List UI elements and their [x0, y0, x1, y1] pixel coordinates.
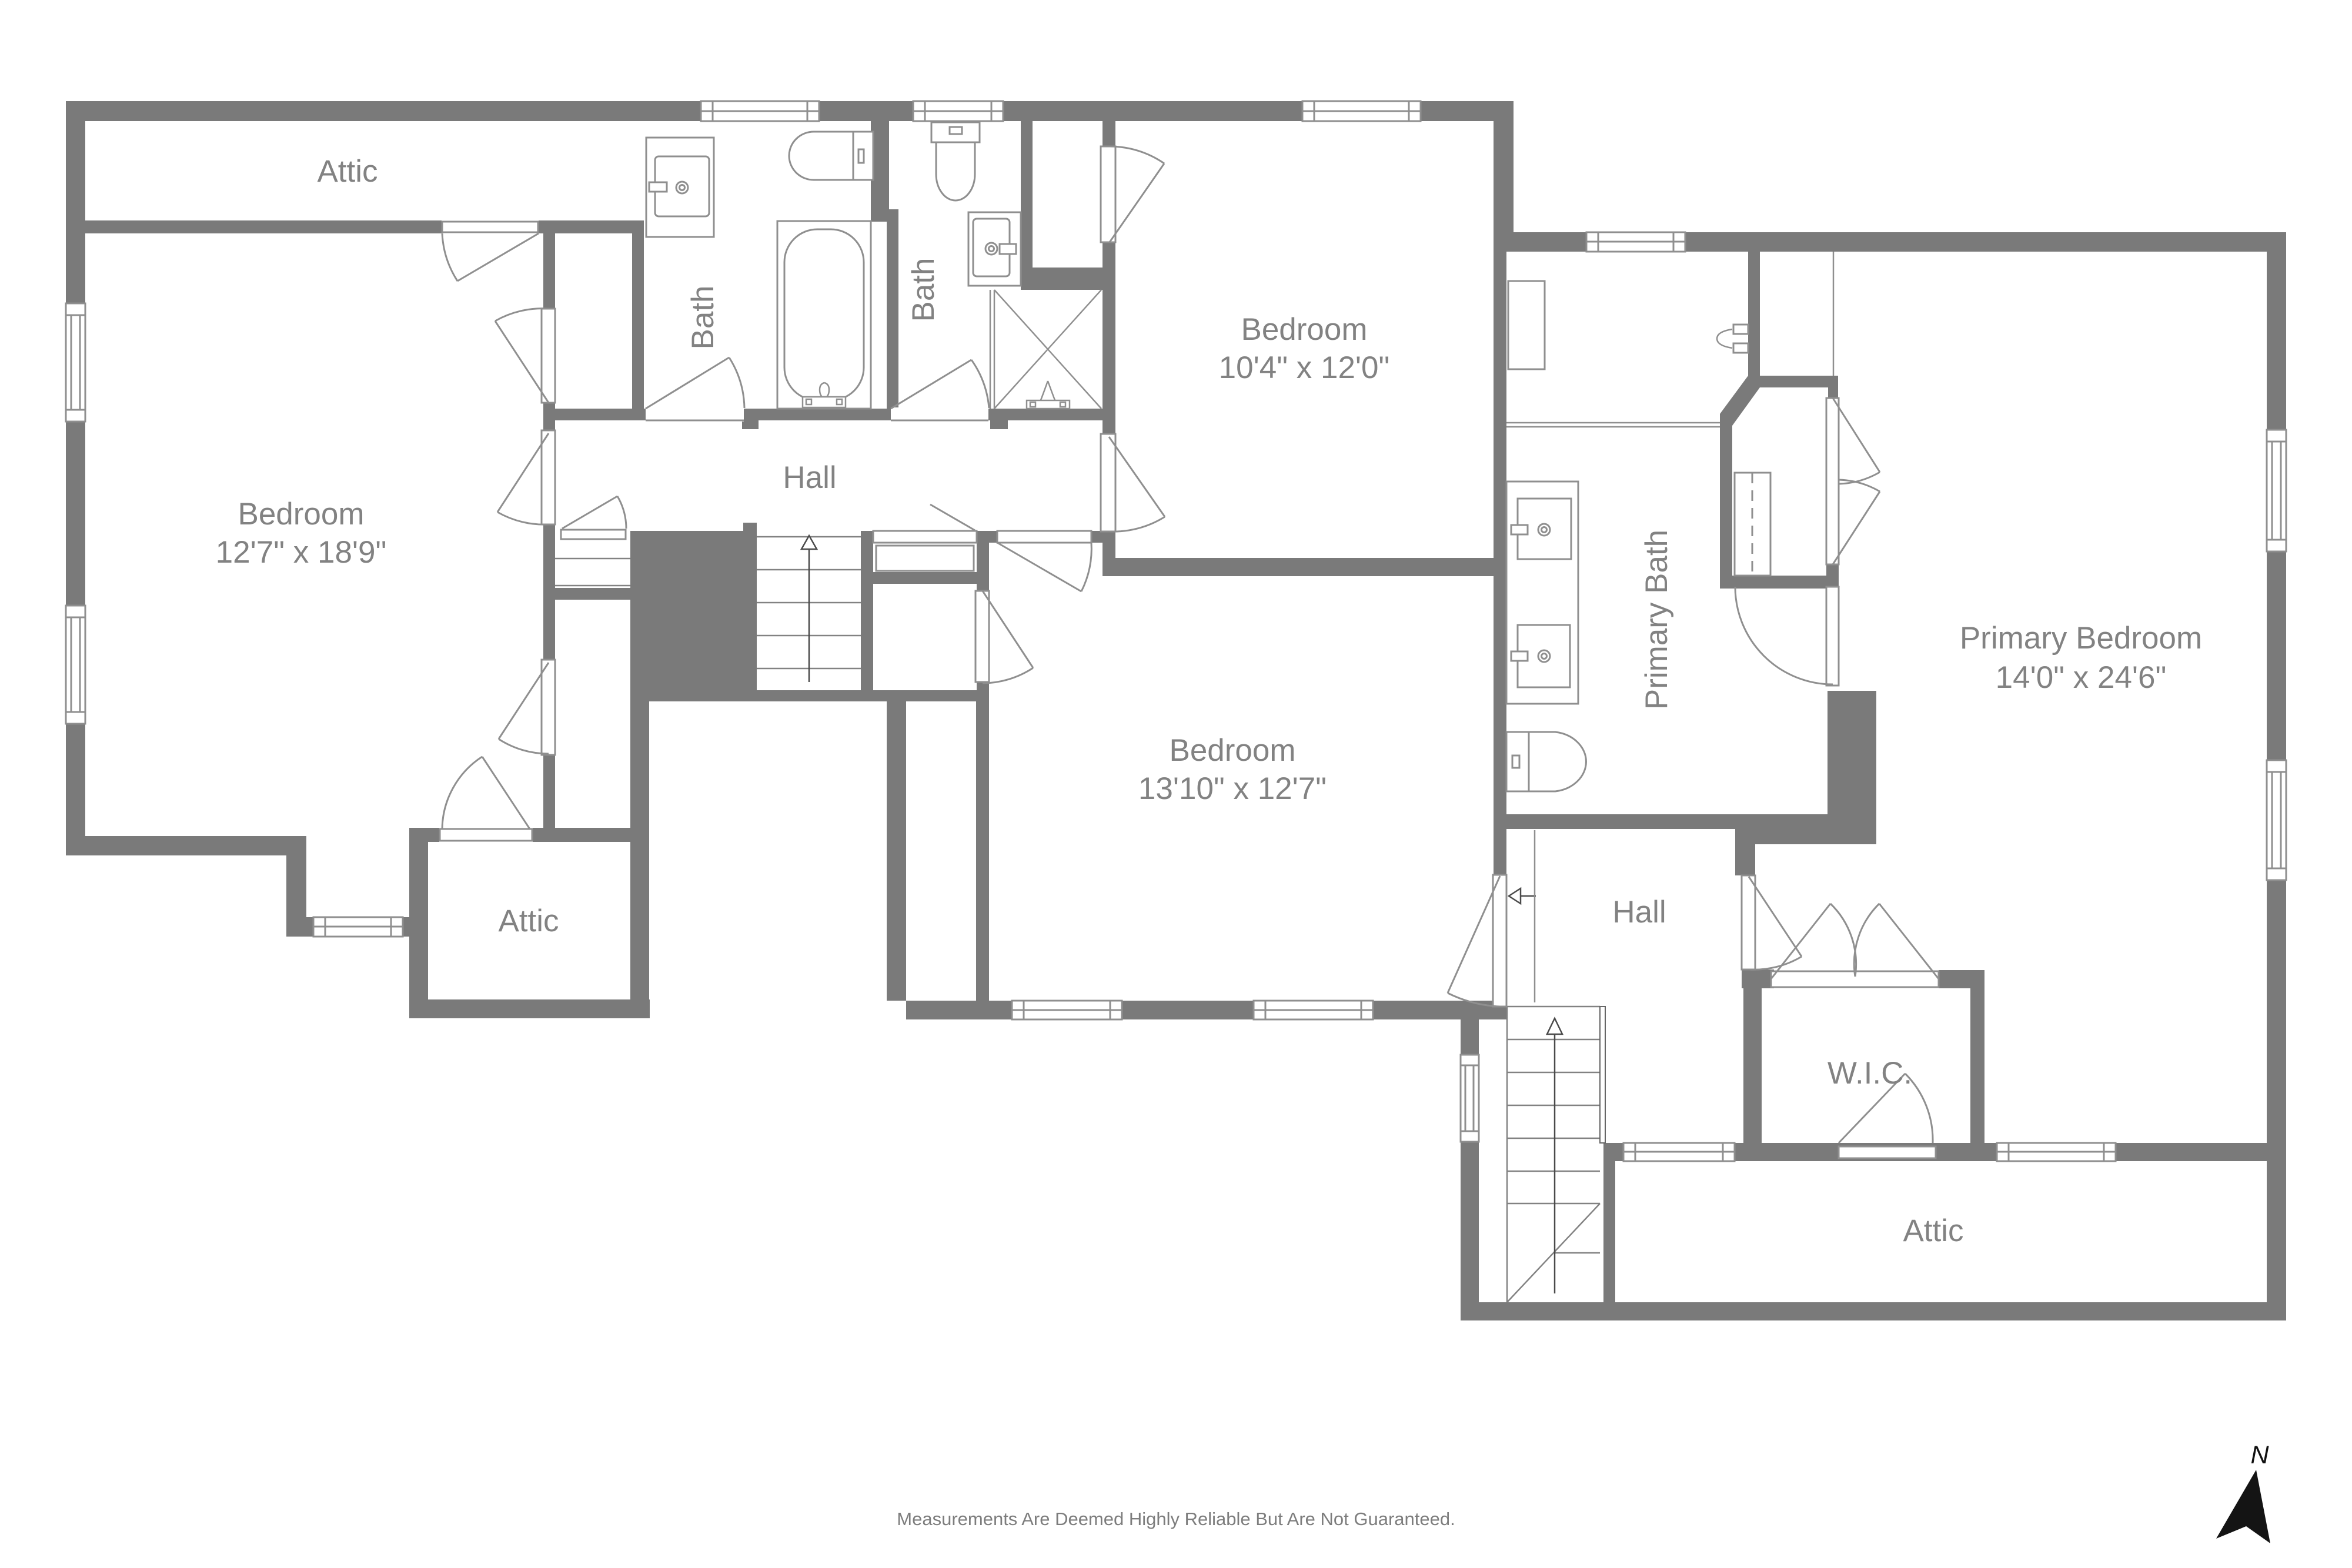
svg-text:Primary Bedroom: Primary Bedroom — [1960, 621, 2202, 656]
svg-text:14'0" x 24'6": 14'0" x 24'6" — [1996, 660, 2167, 695]
svg-text:Bedroom: Bedroom — [1241, 312, 1367, 347]
svg-text:Attic: Attic — [498, 904, 559, 938]
svg-text:Bath: Bath — [686, 285, 720, 349]
svg-text:Primary Bath: Primary Bath — [1639, 530, 1674, 710]
svg-text:Attic: Attic — [1903, 1213, 1963, 1248]
svg-text:Measurements Are Deemed Highly: Measurements Are Deemed Highly Reliable … — [897, 1509, 1455, 1529]
svg-text:Bath: Bath — [906, 258, 941, 322]
svg-text:Bedroom: Bedroom — [1169, 733, 1295, 768]
svg-text:10'4" x 12'0": 10'4" x 12'0" — [1219, 350, 1390, 385]
svg-text:12'7" x 18'9": 12'7" x 18'9" — [216, 535, 387, 570]
svg-text:N: N — [2250, 1441, 2269, 1469]
svg-text:W.I.C.: W.I.C. — [1828, 1056, 1912, 1091]
svg-text:13'10" x 12'7": 13'10" x 12'7" — [1138, 771, 1327, 806]
svg-text:Attic: Attic — [317, 154, 377, 189]
svg-text:Bedroom: Bedroom — [238, 497, 364, 531]
svg-text:Hall: Hall — [783, 460, 836, 495]
svg-text:Hall: Hall — [1612, 895, 1666, 930]
